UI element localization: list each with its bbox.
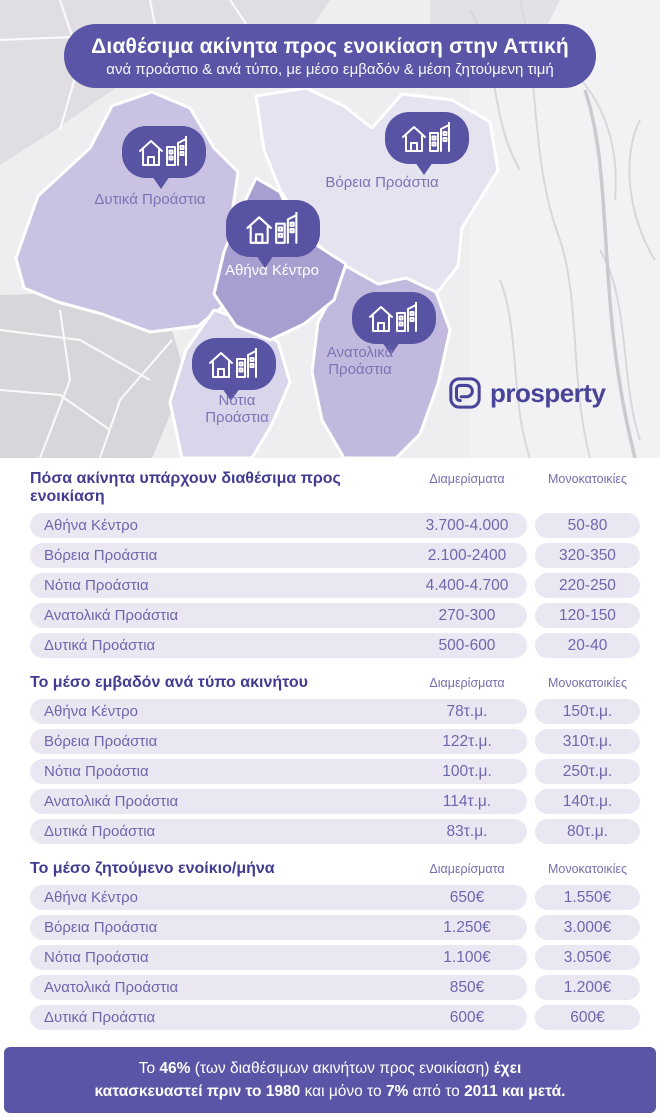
map-pin-bubble bbox=[226, 200, 320, 257]
house-and-buildings-icon bbox=[367, 302, 421, 334]
row-region-label: Βόρεια Προάστια bbox=[30, 547, 407, 564]
row-main-pill: Νότια Προάστια1.100€ bbox=[30, 945, 527, 970]
map-pin-bubble bbox=[192, 338, 276, 390]
row-region-label: Ανατολικά Προάστια bbox=[30, 979, 407, 996]
row-main-pill: Δυτικά Προάστια500-600 bbox=[30, 633, 527, 658]
column-header: Διαμερίσματα bbox=[407, 676, 527, 690]
row-region-label: Βόρεια Προάστια bbox=[30, 733, 407, 750]
table-title: Το μέσο εμβαδόν ανά τύπο ακινήτου bbox=[30, 674, 407, 692]
buildings-icon bbox=[430, 122, 449, 151]
row-houses-value: 3.050€ bbox=[535, 945, 640, 970]
table-row: Αθήνα Κέντρο650€1.550€ bbox=[30, 885, 640, 910]
house-and-buildings-icon bbox=[244, 212, 302, 246]
house-and-buildings-icon bbox=[207, 348, 261, 380]
row-region-label: Ανατολικά Προάστια bbox=[30, 607, 407, 624]
row-houses-value: 1.550€ bbox=[535, 885, 640, 910]
row-houses-value: 250τ.μ. bbox=[535, 759, 640, 784]
row-houses-value: 80τ.μ. bbox=[535, 819, 640, 844]
attica-rental-infographic: Διαθέσιμα ακίνητα προς ενοικίαση στην Ατ… bbox=[0, 0, 660, 1117]
region-label-south: Νότια Προάστια bbox=[195, 392, 279, 426]
table-row: Ανατολικά Προάστια850€1.200€ bbox=[30, 975, 640, 1000]
house-icon bbox=[140, 141, 162, 165]
row-region-label: Δυτικά Προάστια bbox=[30, 637, 407, 654]
house-and-buildings-icon bbox=[137, 136, 191, 168]
row-apartments-value: 1.100€ bbox=[407, 949, 527, 967]
region-label-east: Ανατολικά Προάστια bbox=[318, 344, 402, 378]
region-label-center: Αθήνα Κέντρο bbox=[212, 262, 332, 279]
house-icon bbox=[370, 307, 392, 331]
table-title: Το μέσο ζητούμενο ενοίκιο/μήνα bbox=[30, 860, 407, 878]
table-row: Νότια Προάστια4.400-4.700220-250 bbox=[30, 573, 640, 598]
row-apartments-value: 500-600 bbox=[407, 637, 527, 655]
buildings-icon bbox=[276, 212, 296, 243]
buildings-icon bbox=[397, 302, 416, 331]
marker-west bbox=[122, 126, 206, 178]
row-apartments-value: 3.700-4.000 bbox=[407, 517, 527, 535]
row-apartments-value: 83τ.μ. bbox=[407, 823, 527, 841]
row-houses-value: 3.000€ bbox=[535, 915, 640, 940]
marker-center bbox=[226, 200, 320, 257]
region-label-north: Βόρεια Προάστια bbox=[312, 174, 452, 191]
marker-east bbox=[352, 292, 436, 344]
marker-south bbox=[192, 338, 276, 390]
row-main-pill: Αθήνα Κέντρο78τ.μ. bbox=[30, 699, 527, 724]
row-houses-value: 140τ.μ. bbox=[535, 789, 640, 814]
row-region-label: Αθήνα Κέντρο bbox=[30, 703, 407, 720]
row-region-label: Νότια Προάστια bbox=[30, 763, 407, 780]
row-region-label: Βόρεια Προάστια bbox=[30, 919, 407, 936]
map-pin-bubble bbox=[385, 112, 469, 164]
row-apartments-value: 114τ.μ. bbox=[407, 793, 527, 811]
row-region-label: Δυτικά Προάστια bbox=[30, 823, 407, 840]
table-row: Ανατολικά Προάστια114τ.μ.140τ.μ. bbox=[30, 789, 640, 814]
footer-line: κατασκευαστεί πριν το 1980 και μόνο το 7… bbox=[95, 1080, 566, 1103]
column-header: Διαμερίσματα bbox=[407, 472, 527, 486]
row-region-label: Δυτικά Προάστια bbox=[30, 1009, 407, 1026]
row-main-pill: Δυτικά Προάστια83τ.μ. bbox=[30, 819, 527, 844]
row-main-pill: Βόρεια Προάστια1.250€ bbox=[30, 915, 527, 940]
house-icon bbox=[210, 353, 232, 377]
row-region-label: Αθήνα Κέντρο bbox=[30, 517, 407, 534]
row-apartments-value: 100τ.μ. bbox=[407, 763, 527, 781]
row-houses-value: 50-80 bbox=[535, 513, 640, 538]
row-main-pill: Ανατολικά Προάστια850€ bbox=[30, 975, 527, 1000]
row-region-label: Αθήνα Κέντρο bbox=[30, 889, 407, 906]
row-houses-value: 310τ.μ. bbox=[535, 729, 640, 754]
region-label-west: Δυτικά Προάστια bbox=[80, 191, 220, 208]
map-pin-bubble bbox=[352, 292, 436, 344]
table-2: Το μέσο ζητούμενο ενοίκιο/μήναΔιαμερίσμα… bbox=[30, 860, 640, 1030]
table-row: Βόρεια Προάστια1.250€3.000€ bbox=[30, 915, 640, 940]
row-main-pill: Δυτικά Προάστια600€ bbox=[30, 1005, 527, 1030]
attica-map: Διαθέσιμα ακίνητα προς ενοικίαση στην Ατ… bbox=[0, 0, 660, 458]
table-1: Το μέσο εμβαδόν ανά τύπο ακινήτουΔιαμερί… bbox=[30, 674, 640, 844]
row-main-pill: Ανατολικά Προάστια270-300 bbox=[30, 603, 527, 628]
prosperty-p-icon bbox=[448, 376, 482, 410]
table-row: Δυτικά Προάστια500-60020-40 bbox=[30, 633, 640, 658]
row-main-pill: Αθήνα Κέντρο3.700-4.000 bbox=[30, 513, 527, 538]
row-houses-value: 20-40 bbox=[535, 633, 640, 658]
row-region-label: Νότια Προάστια bbox=[30, 577, 407, 594]
table-row: Αθήνα Κέντρο3.700-4.00050-80 bbox=[30, 513, 640, 538]
table-row: Δυτικά Προάστια600€600€ bbox=[30, 1005, 640, 1030]
prosperty-logo: prosperty bbox=[448, 376, 605, 410]
data-tables: Πόσα ακίνητα υπάρχουν διαθέσιμα προς ενο… bbox=[0, 458, 660, 1035]
marker-north bbox=[385, 112, 469, 164]
house-and-buildings-icon bbox=[400, 122, 454, 154]
map-pin-bubble bbox=[122, 126, 206, 178]
row-region-label: Νότια Προάστια bbox=[30, 949, 407, 966]
house-icon bbox=[248, 217, 271, 243]
column-header: Μονοκατοικίες bbox=[535, 862, 640, 876]
page-subtitle: ανά προάστιο & ανά τύπο, με μέσο εμβαδόν… bbox=[106, 60, 553, 79]
row-apartments-value: 4.400-4.700 bbox=[407, 577, 527, 595]
header-banner: Διαθέσιμα ακίνητα προς ενοικίαση στην Ατ… bbox=[64, 24, 596, 88]
table-row: Βόρεια Προάστια2.100-2400320-350 bbox=[30, 543, 640, 568]
row-main-pill: Νότια Προάστια4.400-4.700 bbox=[30, 573, 527, 598]
row-houses-value: 150τ.μ. bbox=[535, 699, 640, 724]
column-header: Μονοκατοικίες bbox=[535, 676, 640, 690]
brand-wordmark: prosperty bbox=[490, 378, 605, 409]
table-title: Πόσα ακίνητα υπάρχουν διαθέσιμα προς ενο… bbox=[30, 470, 407, 506]
row-apartments-value: 1.250€ bbox=[407, 919, 527, 937]
table-row: Ανατολικά Προάστια270-300120-150 bbox=[30, 603, 640, 628]
row-main-pill: Βόρεια Προάστια2.100-2400 bbox=[30, 543, 527, 568]
table-row: Νότια Προάστια100τ.μ.250τ.μ. bbox=[30, 759, 640, 784]
row-houses-value: 320-350 bbox=[535, 543, 640, 568]
row-houses-value: 600€ bbox=[535, 1005, 640, 1030]
table-row: Δυτικά Προάστια83τ.μ.80τ.μ. bbox=[30, 819, 640, 844]
row-apartments-value: 270-300 bbox=[407, 607, 527, 625]
row-apartments-value: 2.100-2400 bbox=[407, 547, 527, 565]
table-row: Βόρεια Προάστια122τ.μ.310τ.μ. bbox=[30, 729, 640, 754]
row-houses-value: 1.200€ bbox=[535, 975, 640, 1000]
table-0: Πόσα ακίνητα υπάρχουν διαθέσιμα προς ενο… bbox=[30, 470, 640, 658]
row-main-pill: Ανατολικά Προάστια114τ.μ. bbox=[30, 789, 527, 814]
page-title: Διαθέσιμα ακίνητα προς ενοικίαση στην Ατ… bbox=[91, 34, 569, 60]
buildings-icon bbox=[237, 348, 256, 377]
row-houses-value: 220-250 bbox=[535, 573, 640, 598]
row-apartments-value: 650€ bbox=[407, 889, 527, 907]
row-apartments-value: 850€ bbox=[407, 979, 527, 997]
row-region-label: Ανατολικά Προάστια bbox=[30, 793, 407, 810]
table-row: Αθήνα Κέντρο78τ.μ.150τ.μ. bbox=[30, 699, 640, 724]
row-main-pill: Αθήνα Κέντρο650€ bbox=[30, 885, 527, 910]
row-houses-value: 120-150 bbox=[535, 603, 640, 628]
column-header: Μονοκατοικίες bbox=[535, 472, 640, 486]
buildings-icon bbox=[167, 136, 186, 165]
footer-note: Το 46% (των διαθέσιμων ακινήτων προς ενο… bbox=[4, 1047, 656, 1113]
row-apartments-value: 122τ.μ. bbox=[407, 733, 527, 751]
column-header: Διαμερίσματα bbox=[407, 862, 527, 876]
table-row: Νότια Προάστια1.100€3.050€ bbox=[30, 945, 640, 970]
row-apartments-value: 78τ.μ. bbox=[407, 703, 527, 721]
house-icon bbox=[403, 127, 425, 151]
footer-line: Το 46% (των διαθέσιμων ακινήτων προς ενο… bbox=[139, 1057, 522, 1080]
row-main-pill: Βόρεια Προάστια122τ.μ. bbox=[30, 729, 527, 754]
row-apartments-value: 600€ bbox=[407, 1009, 527, 1027]
row-main-pill: Νότια Προάστια100τ.μ. bbox=[30, 759, 527, 784]
